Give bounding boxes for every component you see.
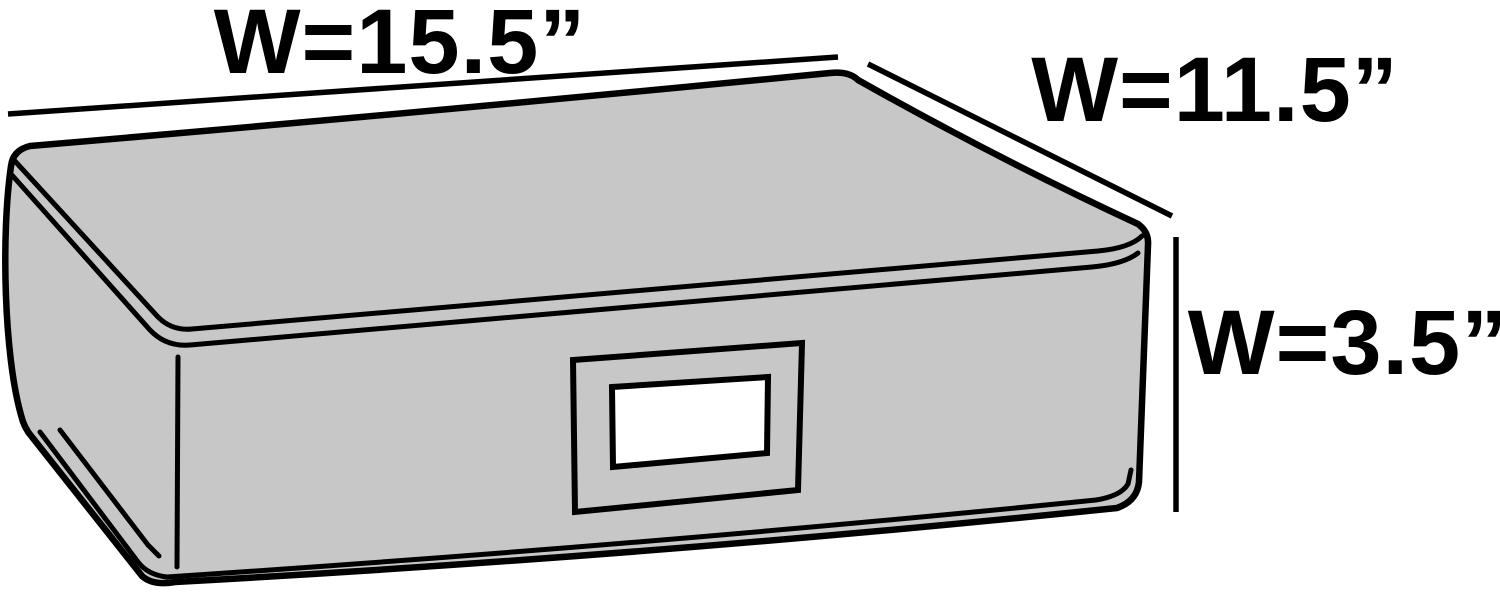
front-seam-line: [177, 357, 178, 567]
dimension-diagram: W=15.5” W=11.5” W=3.5”: [0, 0, 1500, 603]
depth-dimension-label: W=11.5”: [1031, 39, 1399, 141]
label-window: [612, 377, 768, 467]
storage-box-illustration: W=15.5” W=11.5” W=3.5”: [0, 0, 1500, 603]
height-dimension-label: W=3.5”: [1188, 292, 1500, 394]
width-dimension-label: W=15.5”: [214, 0, 587, 93]
